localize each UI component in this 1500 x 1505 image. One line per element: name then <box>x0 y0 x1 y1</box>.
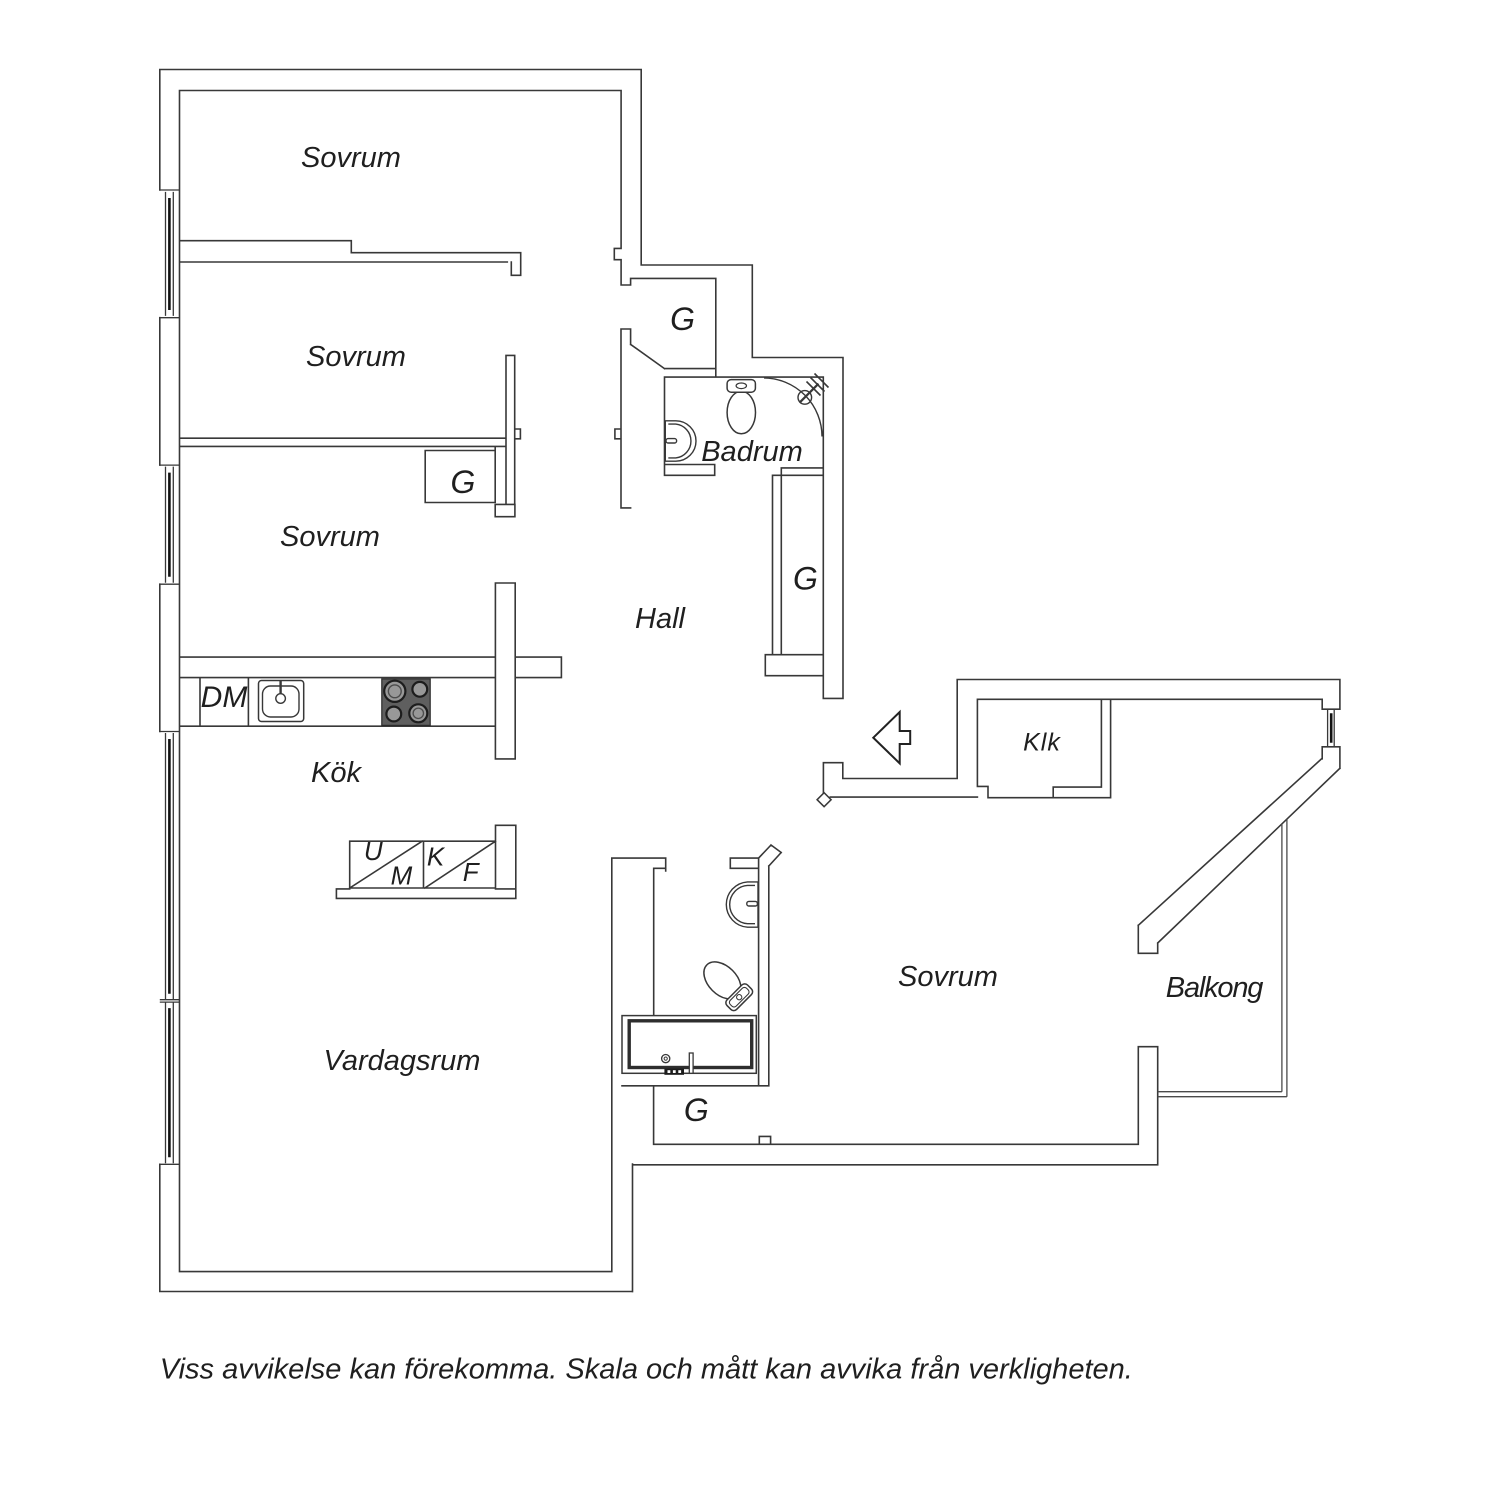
svg-text:Kök: Kök <box>311 757 362 789</box>
svg-text:Viss avvikelse kan förekomma.: Viss avvikelse kan förekomma. Skala och … <box>160 1354 1133 1386</box>
svg-text:G: G <box>670 301 695 337</box>
svg-text:M: M <box>391 861 413 891</box>
svg-text:G: G <box>793 561 818 597</box>
svg-text:G: G <box>451 464 476 500</box>
svg-text:Badrum: Badrum <box>701 436 803 468</box>
svg-text:U: U <box>364 836 383 866</box>
svg-text:F: F <box>463 857 481 887</box>
svg-text:Sovrum: Sovrum <box>306 341 406 373</box>
svg-text:Sovrum: Sovrum <box>898 961 998 993</box>
svg-text:Balkong: Balkong <box>1166 972 1263 1004</box>
svg-text:DM: DM <box>201 681 248 714</box>
svg-text:Klk: Klk <box>1023 729 1061 757</box>
svg-text:Sovrum: Sovrum <box>301 142 401 174</box>
svg-text:Hall: Hall <box>635 603 687 635</box>
svg-text:K: K <box>427 842 446 872</box>
svg-text:Sovrum: Sovrum <box>280 521 380 553</box>
svg-text:Vardagsrum: Vardagsrum <box>324 1045 481 1077</box>
svg-text:G: G <box>684 1092 709 1128</box>
